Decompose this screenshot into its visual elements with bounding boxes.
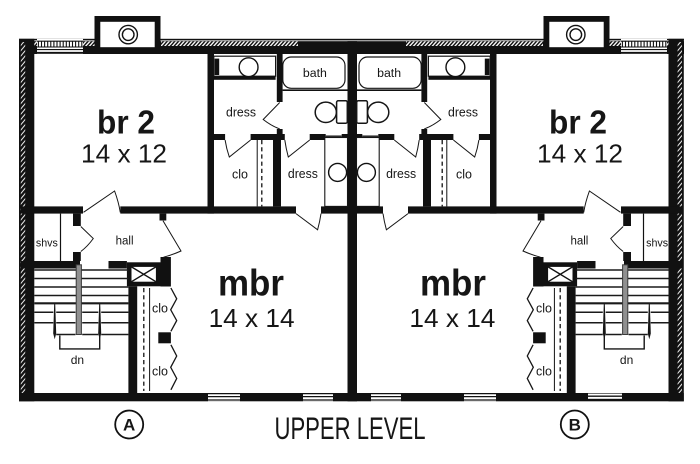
svg-text:dress: dress (448, 105, 478, 119)
svg-text:clo: clo (232, 168, 248, 182)
svg-text:mbr: mbr (420, 263, 486, 304)
svg-text:hall: hall (116, 236, 134, 248)
svg-text:clo: clo (536, 302, 552, 316)
svg-text:bath: bath (377, 68, 401, 80)
svg-text:dress: dress (226, 105, 256, 119)
svg-text:14 x 14: 14 x 14 (409, 303, 495, 333)
svg-text:hall: hall (570, 236, 588, 248)
svg-text:dn: dn (620, 353, 633, 367)
svg-text:clo: clo (152, 302, 168, 316)
svg-text:B: B (569, 416, 581, 435)
svg-text:clo: clo (152, 365, 168, 379)
svg-text:14 x 12: 14 x 12 (537, 139, 623, 169)
svg-text:shvs: shvs (36, 238, 58, 250)
svg-text:br 2: br 2 (97, 104, 155, 141)
svg-text:A: A (123, 416, 135, 435)
svg-text:clo: clo (536, 365, 552, 379)
svg-text:14 x 12: 14 x 12 (81, 139, 167, 169)
svg-text:dn: dn (71, 353, 84, 367)
svg-text:dress: dress (386, 167, 416, 181)
svg-text:br 2: br 2 (549, 104, 607, 141)
svg-text:14 x 14: 14 x 14 (209, 303, 295, 333)
svg-text:shvs: shvs (646, 238, 668, 250)
svg-text:UPPER LEVEL: UPPER LEVEL (275, 410, 426, 446)
svg-text:mbr: mbr (218, 263, 284, 304)
svg-text:dress: dress (288, 167, 318, 181)
svg-text:clo: clo (456, 168, 472, 182)
svg-text:bath: bath (303, 68, 327, 80)
